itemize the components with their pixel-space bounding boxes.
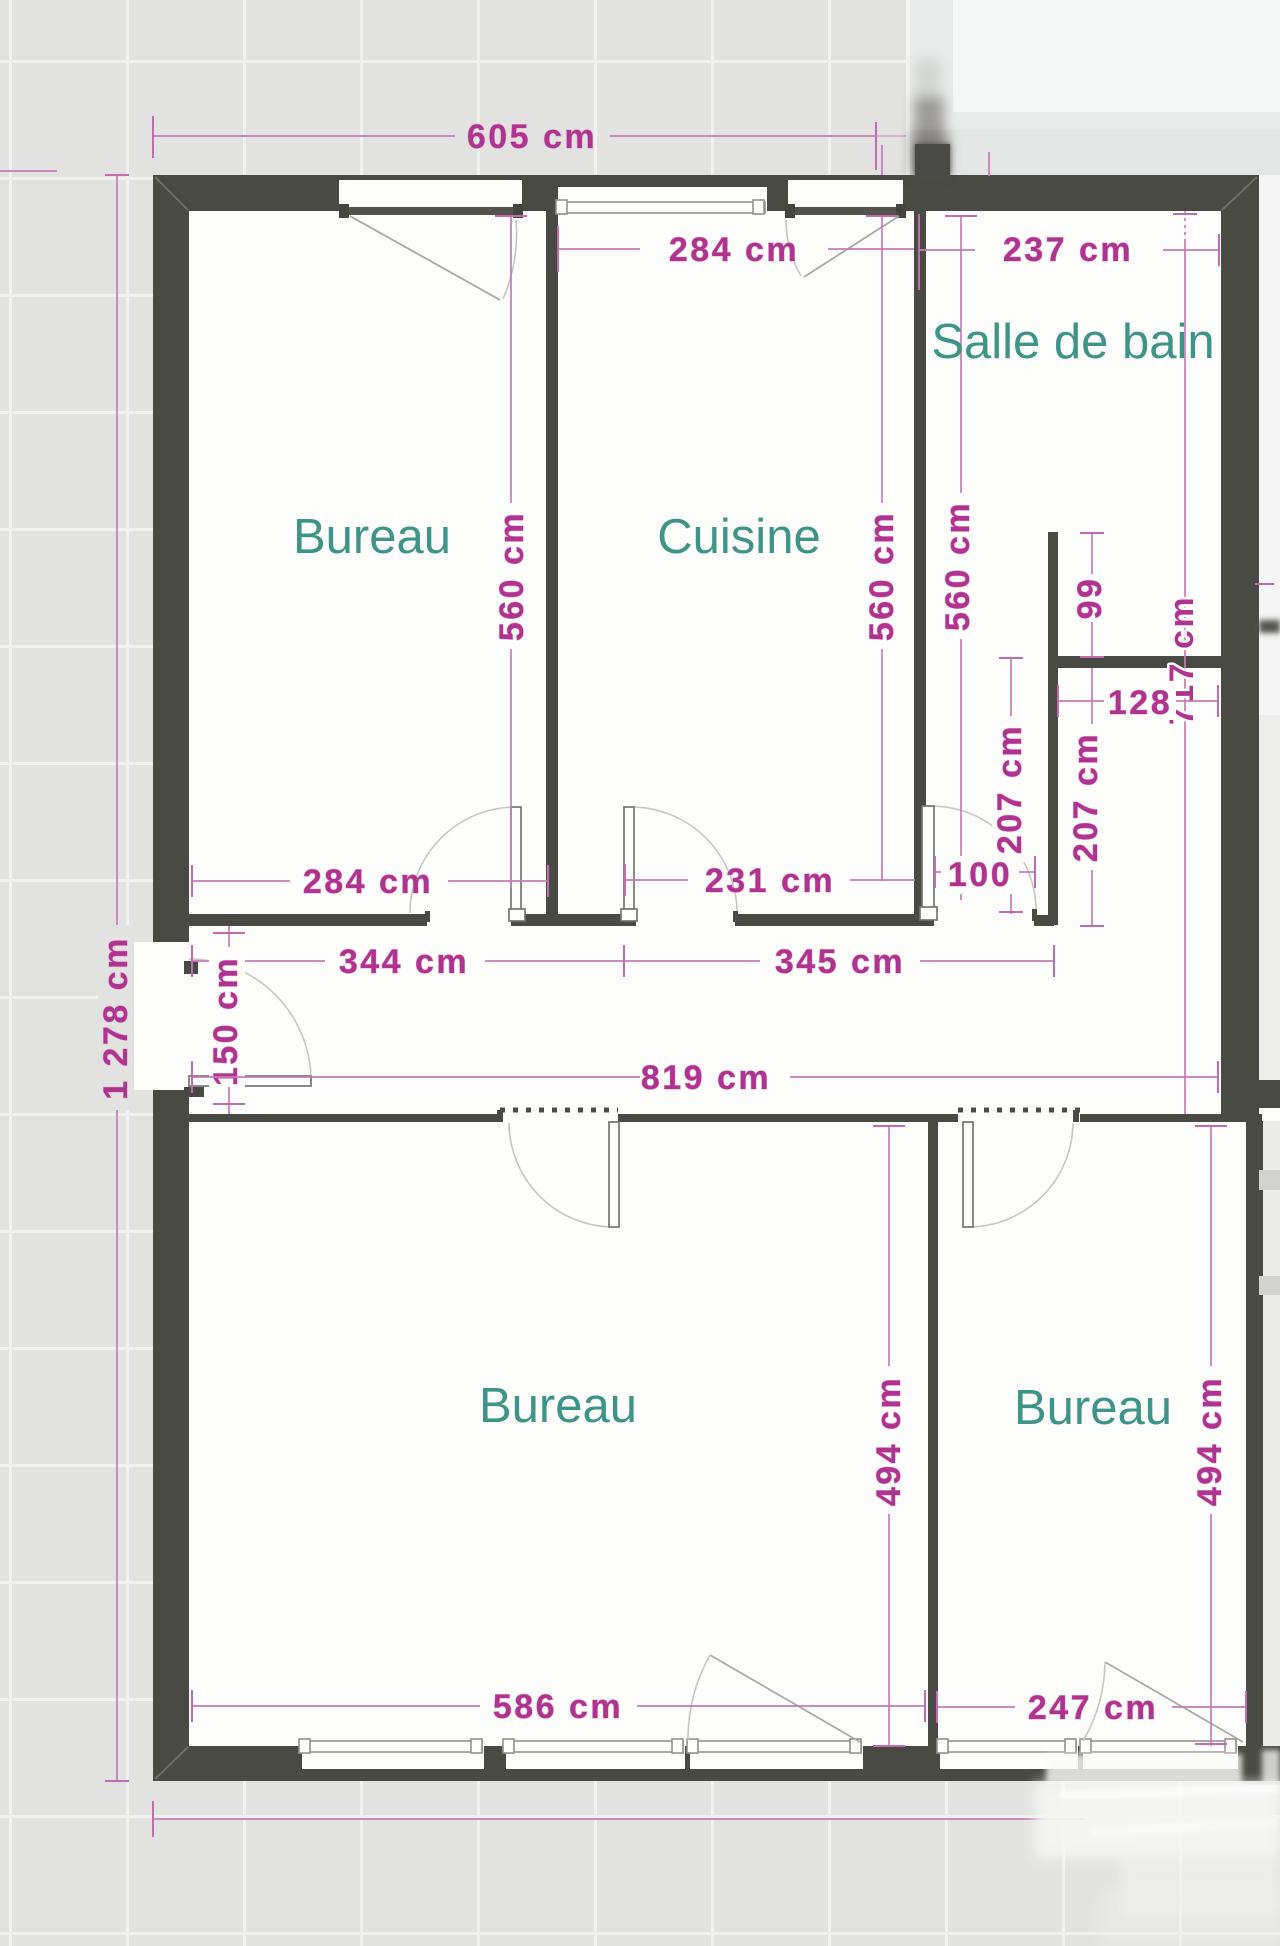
svg-text:Bureau: Bureau xyxy=(293,510,451,564)
svg-text:Salle de bain: Salle de bain xyxy=(931,315,1214,369)
svg-text:128: 128 xyxy=(1108,684,1172,722)
svg-text:586 cm: 586 cm xyxy=(493,1688,623,1726)
svg-text:560 cm: 560 cm xyxy=(493,511,531,641)
svg-text:494 cm: 494 cm xyxy=(870,1376,908,1506)
svg-text:560 cm: 560 cm xyxy=(863,511,901,641)
svg-text:284 cm: 284 cm xyxy=(669,231,799,269)
svg-text:345 cm: 345 cm xyxy=(775,943,905,981)
svg-text:819 cm: 819 cm xyxy=(641,1059,771,1097)
svg-text:207 cm: 207 cm xyxy=(991,724,1029,854)
svg-text:247 cm: 247 cm xyxy=(1028,1689,1158,1727)
svg-text:100: 100 xyxy=(948,856,1012,894)
svg-text:Bureau: Bureau xyxy=(479,1379,637,1433)
svg-text:Cuisine: Cuisine xyxy=(657,510,820,564)
svg-text:344 cm: 344 cm xyxy=(339,943,469,981)
svg-text:560 cm: 560 cm xyxy=(939,501,977,631)
svg-text:494 cm: 494 cm xyxy=(1191,1376,1229,1506)
svg-text:231 cm: 231 cm xyxy=(705,862,835,900)
svg-text:605 cm: 605 cm xyxy=(467,118,597,156)
svg-text:207 cm: 207 cm xyxy=(1067,732,1105,862)
svg-text:Bureau: Bureau xyxy=(1014,1381,1172,1435)
svg-text:284 cm: 284 cm xyxy=(303,863,433,901)
svg-text:99: 99 xyxy=(1071,577,1109,620)
svg-text:237 cm: 237 cm xyxy=(1003,231,1133,269)
svg-text:150 cm: 150 cm xyxy=(207,956,245,1086)
svg-text:1 278 cm: 1 278 cm xyxy=(97,936,135,1100)
